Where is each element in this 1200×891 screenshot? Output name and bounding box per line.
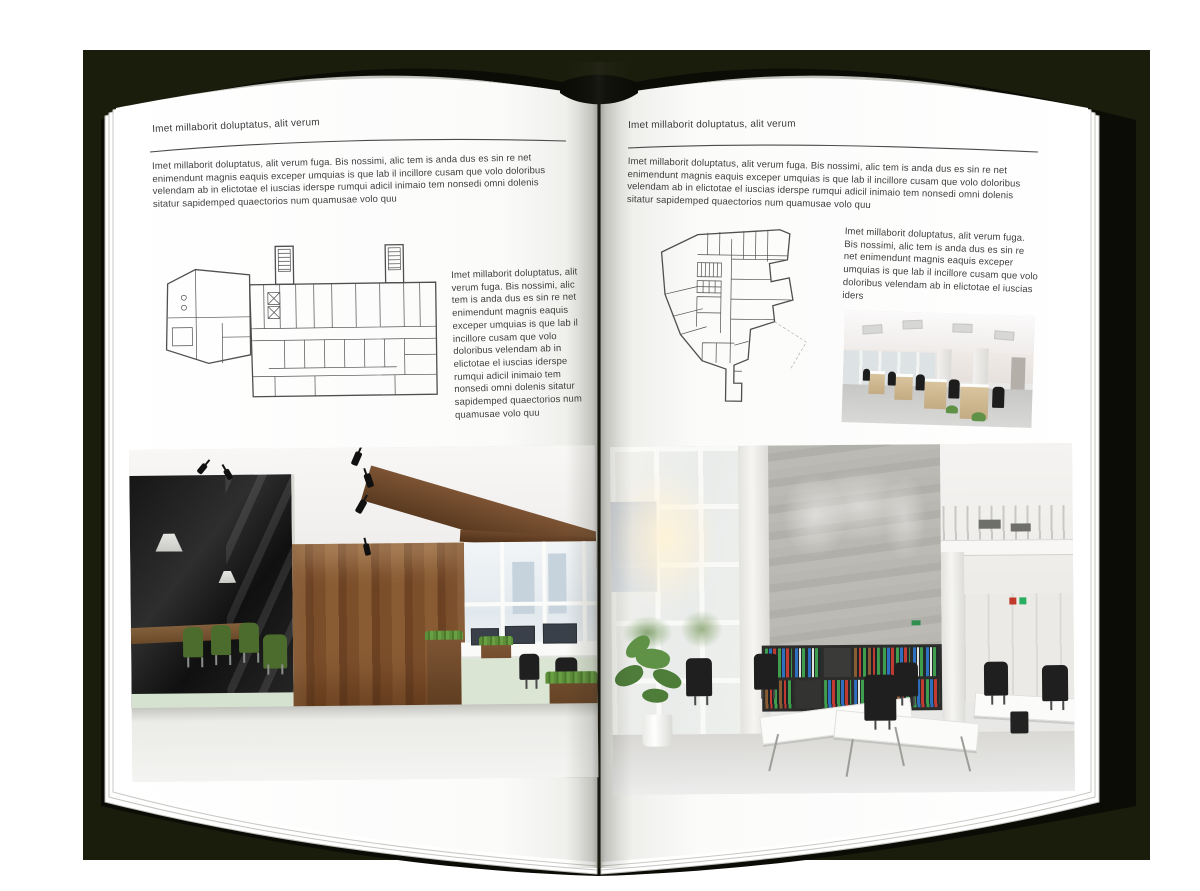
vent-grille <box>1011 523 1031 531</box>
plant <box>972 412 986 421</box>
office-chair <box>864 675 896 721</box>
pendant-lamp <box>152 533 186 551</box>
railing <box>943 505 1075 540</box>
desk-cabinet <box>894 374 913 401</box>
desk-cabinet <box>924 379 947 410</box>
left-page-header: Imet millaborit doluptatus, alit verum <box>152 111 452 135</box>
concrete-wall <box>760 444 942 648</box>
plant <box>946 405 958 413</box>
column <box>941 552 966 748</box>
photo-open-plan-office-small <box>841 310 1034 428</box>
bin <box>1010 711 1028 733</box>
right-page-side-text: Imet millaborit doluptatus, alit verum f… <box>842 226 1041 310</box>
right-page-header: Imet millaborit doluptatus, alit verum <box>628 117 928 131</box>
left-page-intro: Imet millaborit doluptatus, alit verum f… <box>152 152 565 212</box>
door <box>1011 357 1026 391</box>
office-chair <box>754 654 778 690</box>
floor <box>613 731 1076 795</box>
monitor <box>543 623 577 643</box>
office-chair <box>894 662 918 696</box>
office-chair <box>984 662 1008 696</box>
planter-box <box>427 639 462 709</box>
photo-loft-office <box>129 445 598 782</box>
desk-cabinet <box>868 371 885 394</box>
fire-sign <box>1009 597 1016 604</box>
exit-sign <box>912 620 921 625</box>
floor-plan-left <box>163 234 443 408</box>
right-page-intro: Imet millaborit doluptatus, alit verum f… <box>627 156 1038 217</box>
magazine-mockup: Imet millaborit doluptatus, alit verum I… <box>0 0 1200 891</box>
first-aid-sign <box>1019 597 1026 604</box>
floor-plan-right <box>649 222 812 418</box>
office-chair <box>1042 665 1068 701</box>
left-page-side-text: Imet millaborit doluptatus, alit verum f… <box>451 266 583 422</box>
photo-atrium-office <box>610 443 1075 795</box>
potted-plant <box>612 636 691 737</box>
vent-grille <box>979 520 1001 529</box>
